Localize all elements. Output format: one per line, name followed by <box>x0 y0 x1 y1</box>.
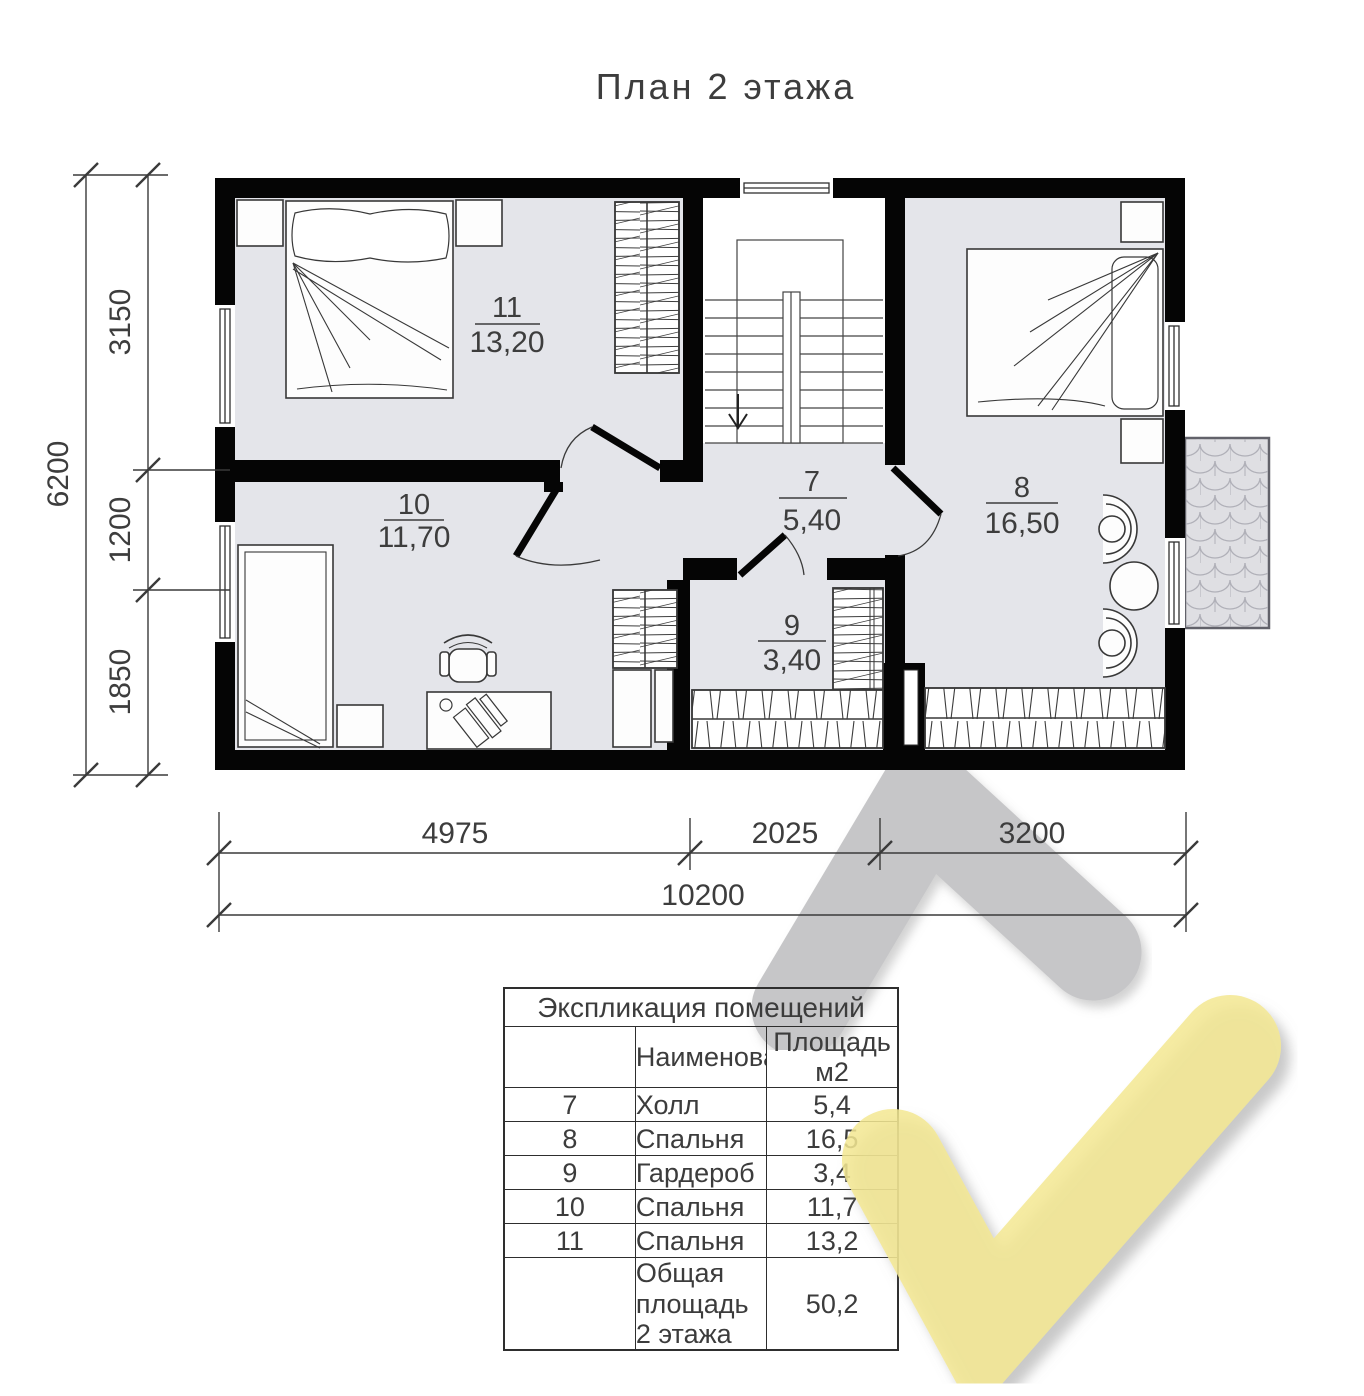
coffee-table <box>1110 562 1158 610</box>
table-row: 9 Гардероб 3,4 <box>504 1156 898 1190</box>
table-header-row: Наименование Площадь м2 <box>504 1027 898 1088</box>
window-top <box>740 178 833 198</box>
dim-label: 1200 <box>104 497 137 564</box>
table-row: 11 Спальня 13,2 <box>504 1224 898 1258</box>
svg-text:5,40: 5,40 <box>783 504 841 537</box>
dimensions-left: 3150 1200 1850 6200 <box>42 163 230 787</box>
dim-label: 3150 <box>104 289 137 356</box>
room-explication-table: Экспликация помещений Наименование Площа… <box>503 987 899 1351</box>
nightstand <box>1121 202 1163 242</box>
header-name: Наименование <box>635 1027 766 1088</box>
wardrobe <box>615 202 679 373</box>
svg-text:11: 11 <box>492 292 522 324</box>
svg-text:9: 9 <box>784 610 800 642</box>
svg-text:10: 10 <box>398 489 430 521</box>
table-caption-row: Экспликация помещений <box>504 988 898 1027</box>
balcony <box>1185 438 1269 628</box>
window-left-lower <box>215 522 235 642</box>
table-caption: Экспликация помещений <box>504 988 898 1027</box>
header-num <box>504 1027 635 1088</box>
svg-text:16,50: 16,50 <box>984 507 1059 540</box>
svg-text:13,20: 13,20 <box>469 326 544 359</box>
desk <box>427 691 551 749</box>
header-area: Площадь м2 <box>767 1027 898 1088</box>
wall-niche <box>904 670 918 745</box>
closet <box>613 590 677 668</box>
dim-label: 1850 <box>104 649 137 716</box>
page-title: План 2 этажа <box>596 66 857 107</box>
nightstand <box>237 200 283 246</box>
nightstand <box>456 200 502 246</box>
table-row: 10 Спальня 11,7 <box>504 1190 898 1224</box>
dim-label: 2025 <box>752 817 819 850</box>
svg-text:11,70: 11,70 <box>378 521 451 554</box>
window-right-lower <box>1165 538 1185 628</box>
table-row: 8 Спальня 16,5 <box>504 1122 898 1156</box>
built-in-wardrobe <box>925 688 1165 748</box>
svg-text:8: 8 <box>1014 472 1030 504</box>
window-right-upper <box>1165 322 1185 410</box>
dim-label: 4975 <box>422 817 489 850</box>
table-row: 7 Холл 5,4 <box>504 1088 898 1122</box>
dim-label-total: 6200 <box>42 441 75 508</box>
built-in-wardrobe <box>692 690 883 748</box>
nightstand <box>1121 419 1163 463</box>
double-bed <box>286 201 453 398</box>
dim-label: 3200 <box>999 817 1066 850</box>
cabinet <box>655 670 673 742</box>
table-total-row: Общая площадь 2 этажа 50,2 <box>504 1258 898 1350</box>
single-bed <box>238 545 333 748</box>
total-label: Общая площадь 2 этажа <box>635 1258 766 1350</box>
window-left-upper <box>215 305 235 427</box>
nightstand <box>337 705 383 747</box>
wardrobe <box>833 588 883 690</box>
double-bed <box>967 249 1163 416</box>
cabinet <box>613 670 651 747</box>
dim-label-total: 10200 <box>661 879 744 912</box>
total-area: 50,2 <box>767 1258 898 1350</box>
page: { "title": "План 2 этажа", "plan": { "ro… <box>0 0 1364 1396</box>
dimensions-bottom: 4975 2025 3200 10200 <box>207 812 1198 932</box>
svg-text:7: 7 <box>804 466 820 498</box>
svg-text:3,40: 3,40 <box>763 644 821 677</box>
